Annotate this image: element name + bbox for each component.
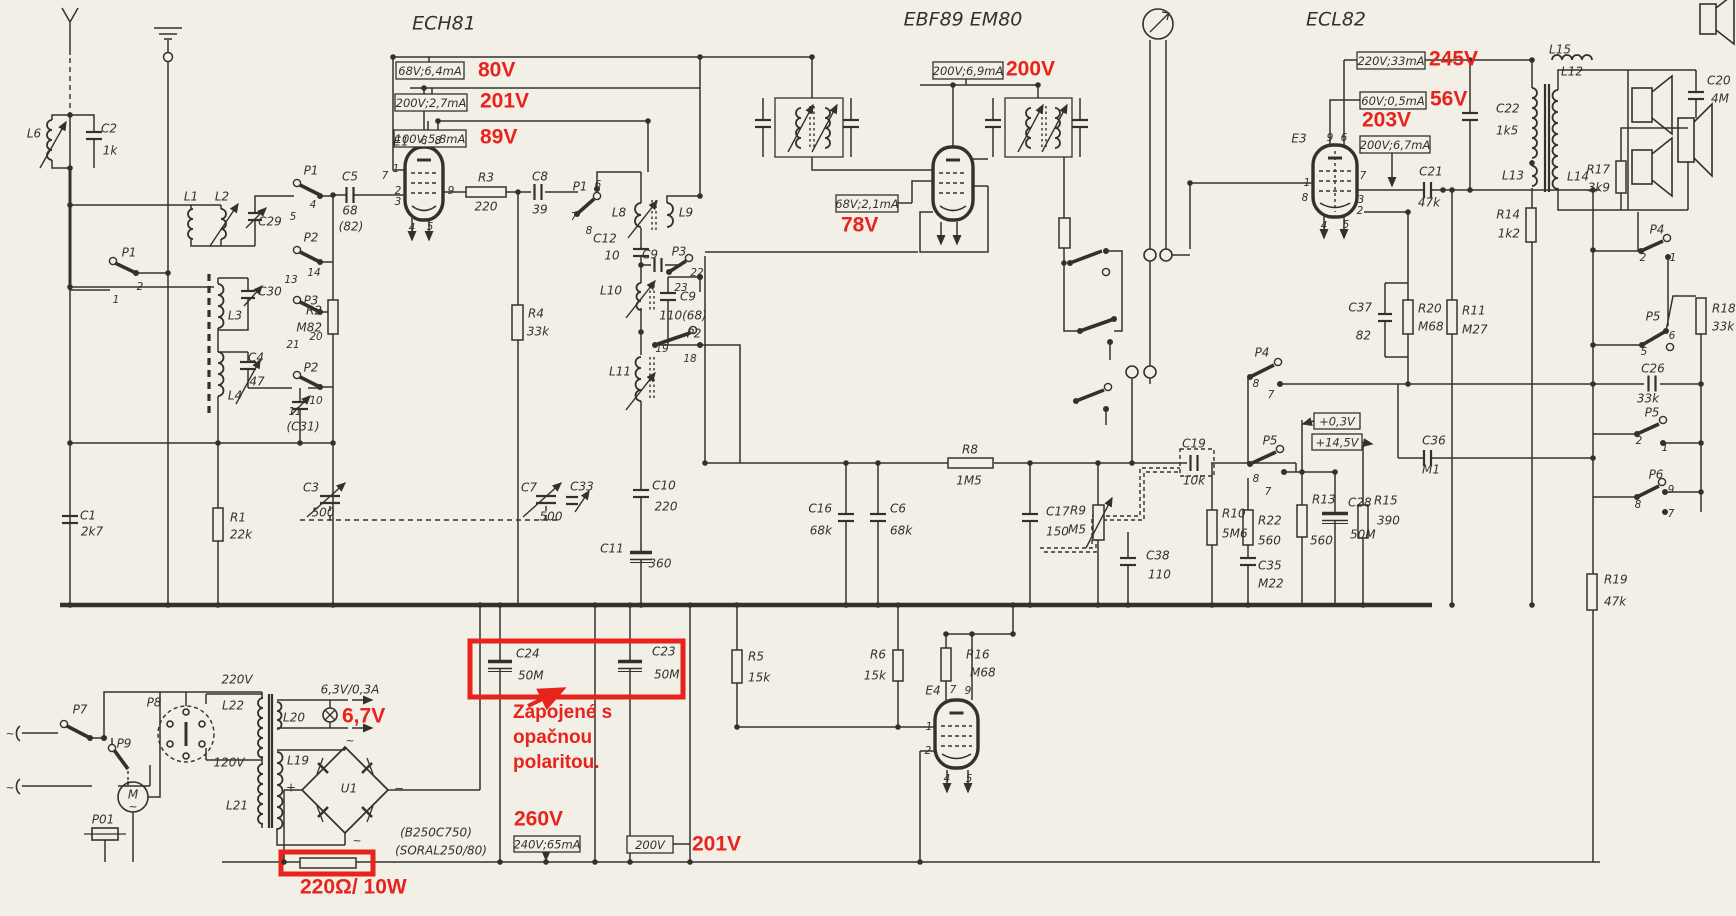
component-label: P7 [73,703,88,717]
component-label: L21 [226,799,248,813]
component-label: C16 [808,502,832,516]
component-label: 2 [1357,205,1364,217]
resistor-symbol [732,650,742,683]
resistor-symbol [1587,574,1597,610]
resistor-symbol [893,650,903,681]
component-label: E4 [925,684,940,698]
junction-dot [67,112,73,118]
component-label: 5 [1641,346,1648,358]
component-label: L2 [215,190,229,204]
component-label: L15 [1549,43,1571,57]
component-label: L19 [287,754,309,768]
component-label: L1 [184,190,198,204]
component-label: C4 [248,351,264,365]
component-label: R9 [1070,504,1086,518]
measured-voltage-annotation: 220Ω/ 10W [300,876,407,899]
component-label: 47k [1418,196,1441,210]
nominal-voltage-label: 68V;6,4mA [398,64,462,78]
component-label: 6 [421,135,428,147]
component-label: 5 [427,221,434,233]
component-label: L8 [612,206,627,220]
component-label: R1 [230,511,246,525]
resistor-symbol [328,300,338,334]
junction-dot [330,192,336,198]
component-label: 4 [1321,220,1328,232]
component-label: R17 [1586,163,1610,177]
component-label: 39 [532,203,547,217]
junction-dot [1299,469,1305,475]
component-label: R11 [1462,304,1486,318]
component-label: 8 [586,225,593,237]
junction-dot [638,329,644,335]
component-label: (B250C750) [400,826,472,840]
component-label: C35 [1258,559,1282,573]
junction-dot [421,85,427,91]
component-label: 15k [864,669,887,683]
junction-dot [969,631,975,637]
component-label: C30 [258,285,282,299]
junction-dot [67,202,73,208]
component-label: 19 [655,343,669,355]
junction-dot [734,724,740,730]
component-label: ~ [129,801,138,813]
junction-dot [1698,489,1704,495]
component-label: 21 [286,339,299,351]
junction-dot [101,735,107,741]
tube-type-label: ECL82 [1306,9,1366,31]
component-label: 220V [221,673,253,687]
component-label: R5 [748,650,764,664]
component-label: M [128,788,139,802]
component-label: 2 [1640,252,1647,264]
nominal-voltage-label: 200V [635,838,666,852]
component-label: C17 [1046,505,1070,519]
junction-dot [875,602,881,608]
resistor-symbol [1616,161,1626,193]
component-label: P8 [147,696,162,710]
measured-voltage-annotation: 80V [478,59,515,82]
nominal-voltage-label: 200V;6,9mA [933,64,1004,78]
component-label: R19 [1604,573,1628,587]
component-label: 1 [1662,442,1669,454]
component-label: L4 [228,389,242,403]
component-label: 220 [475,200,498,214]
component-label: C8 [532,170,548,184]
component-label: L13 [1502,169,1524,183]
nominal-voltage-label: 200V;6,7mA [1360,138,1431,152]
junction-dot [1035,82,1041,88]
component-label: 9 [965,685,972,697]
component-label: M22 [1258,577,1284,591]
junction-dot [297,440,303,446]
component-label: 5 [1343,219,1350,231]
component-label: M82 [296,321,322,335]
junction-dot [1590,247,1596,253]
resistor-symbol [1297,505,1307,537]
junction-dot [1332,469,1338,475]
junction-dot [895,724,901,730]
component-label: 50M [1350,528,1376,542]
junction-dot [330,440,336,446]
component-label: 8 [1253,378,1260,390]
junction-dot [875,460,881,466]
component-label: P6 [1649,468,1664,482]
junction-dot [67,440,73,446]
junction-dot [809,54,815,60]
component-label: R3 [478,171,494,185]
component-label: P5 [1646,310,1661,324]
component-label: P4 [1255,346,1270,360]
component-label: 47 [249,375,265,389]
component-label: P4 [1650,223,1665,237]
junction-dot [687,859,693,865]
junction-dot [1061,260,1067,266]
junction-dot [1590,381,1596,387]
junction-dot [67,284,73,290]
component-label: P5 [1645,406,1660,420]
junction-dot [1209,602,1215,608]
component-label: 7 [950,684,957,696]
junction-dot [1129,460,1135,466]
component-label: C3 [303,481,319,495]
component-label: 360 [649,557,672,571]
component-label: C2 [101,122,117,136]
component-label: 7 [382,170,389,182]
component-label: 110(68) [659,309,707,323]
component-label: ~ [346,735,355,747]
junction-dot [1405,209,1411,215]
measured-voltage-annotation: 245V [1429,48,1478,71]
resistor-symbol [466,187,506,197]
component-label: M5 [1068,523,1086,537]
junction-dot [281,859,287,865]
measured-voltage-annotation: 201V [692,833,741,856]
component-label: (C31) [286,420,319,434]
resistor-symbol [1447,300,1457,334]
component-label: C37 [1348,301,1372,315]
nominal-voltage-label: 200V;2,7mA [396,96,467,110]
resistor-symbol [1207,510,1217,545]
junction-dot [1010,602,1016,608]
component-label: 47k [1604,595,1627,609]
junction-dot [1360,602,1366,608]
component-label: C9 [680,290,696,304]
component-label: 1 [113,294,120,306]
component-label: 8 [1635,499,1642,511]
junction-dot [215,602,221,608]
component-label: 50M [518,669,544,683]
component-label: E3 [1291,132,1306,146]
component-label: 6 [595,179,602,191]
resistor-symbol [941,648,951,681]
junction-dot [702,460,708,466]
junction-dot [1405,381,1411,387]
component-label: C6 [890,502,906,516]
junction-dot [1245,602,1251,608]
measured-voltage-annotation: 6,7V [342,705,385,728]
component-label: 22k [230,528,253,542]
component-label: R20 [1418,302,1442,316]
component-label: 1 [926,721,933,733]
component-label: ~ [6,782,15,794]
measured-voltage-annotation: 201V [480,90,529,113]
repair-note-line: polaritou. [513,752,600,773]
component-label: 5 [290,211,297,223]
component-label: C38 [1146,549,1170,563]
component-label: ~ [6,728,15,740]
component-label: R16 [966,648,990,662]
junction-dot [1440,187,1446,193]
component-label: C10 [652,479,676,493]
measured-voltage-annotation: 203V [1362,109,1411,132]
component-label: R8 [962,443,978,457]
component-label: 82 [1356,329,1371,343]
component-label: C5 [342,170,358,184]
resistor-symbol [1526,208,1536,242]
component-label: 22 [690,267,704,279]
component-label: 14 [307,267,320,279]
component-label: 68 [342,204,358,218]
component-label: 9 [1668,484,1675,496]
component-label: 10 [604,249,620,263]
junction-dot [917,859,923,865]
component-label: C9 [642,248,658,262]
component-label: 1 [393,163,400,175]
component-label: 6,3V/0,3A [321,683,380,697]
component-label: M27 [1462,323,1488,337]
junction-dot [1095,602,1101,608]
component-label: C12 [593,232,617,246]
component-label: P2 [304,231,319,245]
junction-dot [477,602,483,608]
component-label: 1k5 [1496,124,1518,138]
junction-dot [627,602,633,608]
component-label: 68k [810,524,833,538]
component-label: 33k [1712,320,1735,334]
junction-dot [1027,460,1033,466]
junction-dot [1449,602,1455,608]
component-label: R22 [1258,514,1282,528]
nominal-voltage-label: 68V;2,1mA [835,197,899,211]
junction-dot [1187,180,1193,186]
component-label: 560 [1310,534,1333,548]
component-label: U1 [341,782,357,796]
component-label: R13 [1312,493,1336,507]
junction-dot [943,631,949,637]
component-label: 1 [1670,252,1677,264]
measured-voltage-annotation: 56V [1430,88,1467,111]
component-label: E1 [393,135,408,149]
component-label: (82) [339,220,364,234]
resistor-symbol [300,858,356,868]
measured-voltage-annotation: 78V [841,214,878,237]
component-label: 3 [395,196,402,208]
junction-dot [1698,440,1704,446]
junction-dot [638,602,644,608]
junction-dot [1529,160,1535,166]
component-label: 390 [1377,514,1400,528]
component-label: P3 [672,245,687,259]
component-label: 7 [1668,508,1675,520]
junction-dot [1095,460,1101,466]
junction-dot [435,118,441,124]
component-label: 13 [284,274,297,286]
component-label: P1 [304,164,319,178]
component-label: L9 [679,206,693,220]
component-label: C29 [258,215,282,229]
junction-dot [1590,342,1596,348]
measured-voltage-annotation: 89V [480,126,517,149]
component-label: 9 [448,185,455,197]
component-label: C21 [1419,165,1443,179]
component-label: L3 [228,309,242,323]
component-label: P5 [1263,434,1278,448]
junction-dot [67,165,73,171]
junction-dot [497,602,503,608]
component-label: 2 [925,745,932,757]
component-label: 50M [654,668,680,682]
junction-dot [734,602,740,608]
component-label: M1 [1422,463,1440,477]
component-label: 1 [1304,177,1311,189]
component-label: (SORAL250/80) [395,844,487,858]
component-label: L11 [609,365,631,379]
resistor-symbol [1403,300,1413,334]
component-label: 33k [527,325,550,339]
resistor-symbol [948,458,993,468]
measured-voltage-annotation: 260V [514,808,563,831]
component-label: 6 [1341,132,1348,144]
component-label: C22 [1496,102,1520,116]
junction-dot [1529,57,1535,63]
tube-type-label: ECH81 [412,13,476,35]
component-label: 10 [309,395,323,407]
component-label: 4 [409,222,416,234]
component-label: 220 [655,500,678,514]
junction-dot [67,602,73,608]
junction-dot [330,602,336,608]
resistor-symbol [213,508,223,541]
junction-dot [165,602,171,608]
component-label: P2 [304,361,319,375]
component-label: P01 [92,813,115,827]
component-label: P2 [687,327,702,341]
component-label: 2 [137,281,144,293]
junction-dot [215,440,221,446]
component-label: C23 [652,645,676,659]
resistor-symbol [512,305,523,340]
junction-dot [1698,381,1704,387]
component-label: P9 [117,737,132,751]
component-label: 68k [890,524,913,538]
junction-dot [1125,602,1131,608]
component-label: 8 [435,135,442,147]
junction-dot [645,118,651,124]
measured-voltage-annotation: 200V [1006,58,1055,81]
nominal-voltage-label: +0,3V [1319,415,1356,429]
component-label: ~ [353,835,362,847]
component-label: 18 [683,353,697,365]
component-label: R15 [1374,494,1398,508]
nominal-voltage-label: 220V;33mA [1357,54,1424,68]
component-label: 1k2 [1498,227,1520,241]
junction-dot [1529,602,1535,608]
component-label: 500 [312,506,335,520]
component-label: 4 [944,773,951,785]
junction-dot [543,859,549,865]
nominal-voltage-label: 60V;0,5mA [1361,94,1425,108]
component-label: 6 [1669,330,1676,342]
component-label: C11 [600,542,624,556]
component-label: L6 [27,127,42,141]
component-label: R10 [1222,507,1246,521]
component-label: C24 [516,647,540,661]
component-label: M68 [970,666,996,680]
resistor-symbol [1696,298,1706,334]
component-label: R4 [528,307,544,321]
junction-dot [1590,455,1596,461]
component-label: L10 [600,284,622,298]
component-label: C36 [1422,434,1446,448]
nominal-voltage-label: 240V;65mA [513,838,580,852]
junction-dot [638,262,644,268]
component-label: 2k7 [81,525,104,539]
component-label: 8 [1302,192,1309,204]
junction-dot [843,602,849,608]
component-label: − [394,782,404,796]
component-label: R18 [1712,302,1736,316]
component-label: 11 [288,406,301,418]
component-label: 9 [1327,132,1334,144]
component-label: 500 [540,510,563,524]
resistor-symbol [1059,218,1070,248]
radio-schematic: ECH81EBF89 EM80ECL8268V;6,4mA80V200V;2,7… [0,0,1736,916]
component-label: 7 [571,211,578,223]
junction-dot [687,602,693,608]
component-label: C19 [1182,437,1206,451]
component-label: 15k [748,671,771,685]
component-label: 5M6 [1222,527,1248,541]
junction-dot [697,193,703,199]
component-label: R14 [1496,208,1520,222]
component-label: 4 [310,199,317,211]
component-label: C33 [570,480,594,494]
component-label: 7 [1265,486,1272,498]
component-label: 2 [1636,435,1643,447]
junction-dot [697,342,703,348]
component-label: 10k [1183,474,1206,488]
nominal-voltage-label: +14,5V [1315,436,1359,450]
component-label: C20 [1707,74,1731,88]
repair-note-line: opačnou [513,727,592,748]
component-label: 5 [966,773,973,785]
component-label: P1 [573,180,588,194]
junction-dot [843,460,849,466]
component-label: 4M [1711,92,1730,106]
junction-dot [697,54,703,60]
junction-dot [1449,187,1455,193]
junction-dot [165,270,171,276]
junction-dot [627,859,633,865]
component-label: 3k9 [1588,181,1610,195]
component-label: 8 [1253,473,1260,485]
component-label: 120V [213,756,245,770]
component-label: 150 [1046,525,1069,539]
junction-dot [895,602,901,608]
junction-dot [1010,631,1016,637]
repair-note-line: Zapojené s [513,702,612,723]
component-label: C28 [1348,496,1372,510]
